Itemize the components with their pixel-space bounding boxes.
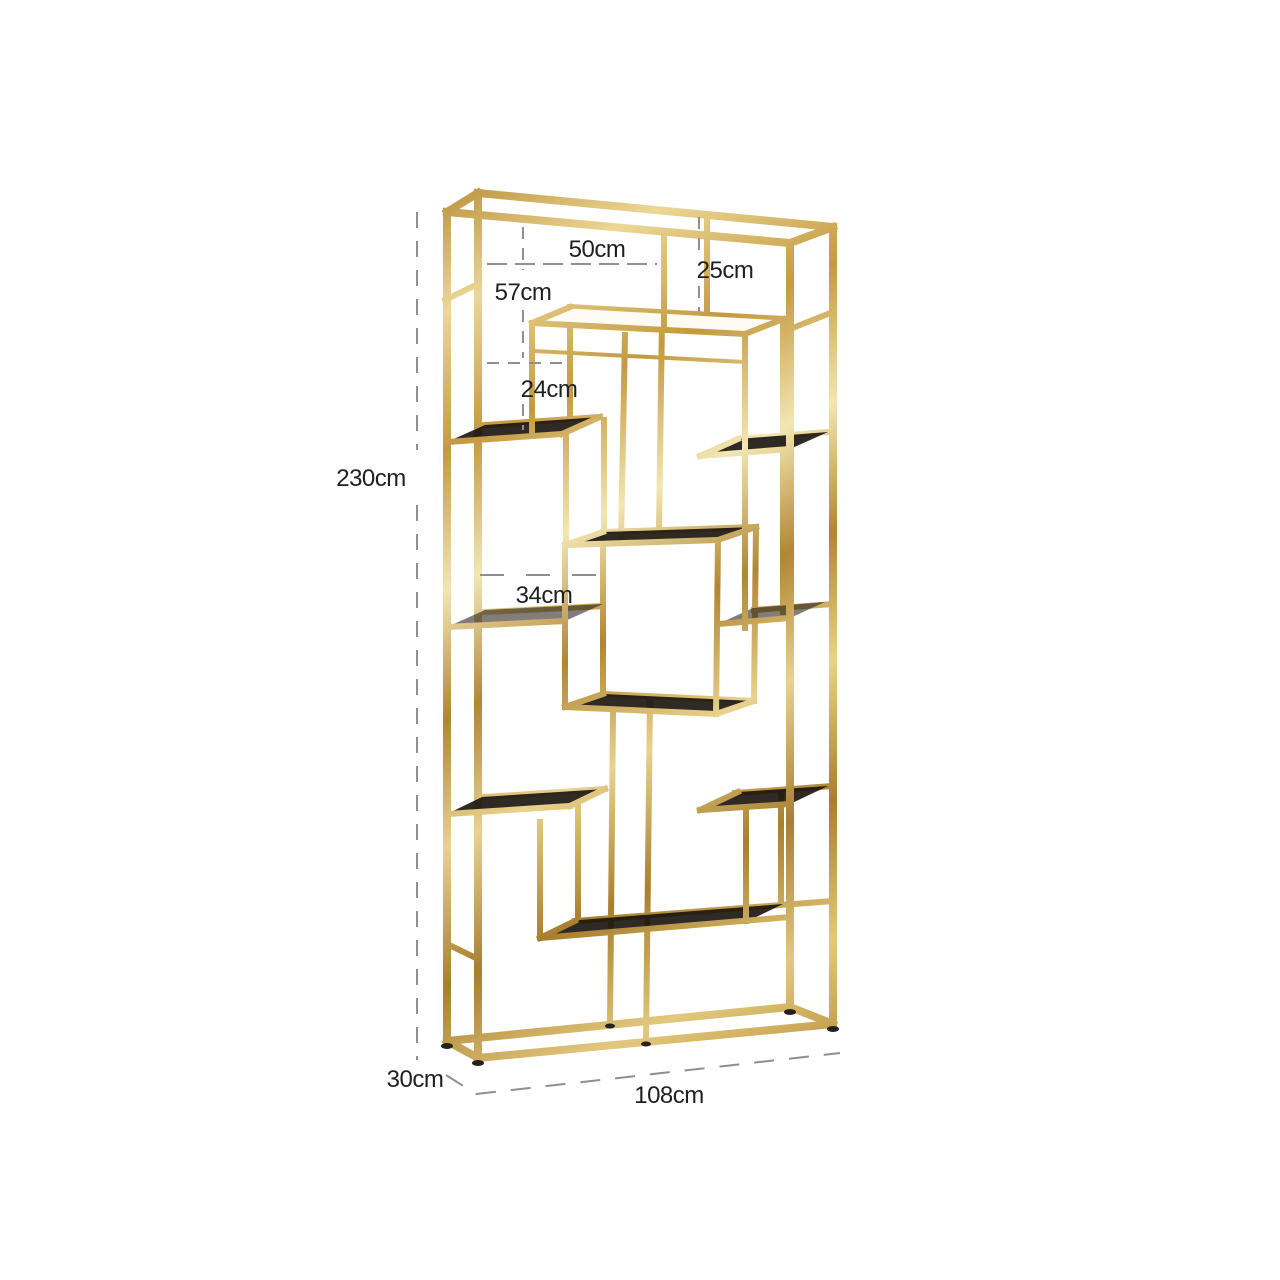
dimension-label-upper-left-shelf: 24cm [521, 376, 578, 403]
dimension-annotations: 230cm 57cm 50cm 25cm 24cm 34cm [336, 212, 840, 1109]
etagere-front-interior [447, 232, 790, 938]
dimension-label-overall-height: 230cm [336, 465, 406, 492]
dimension-label-upper-left-section: 57cm [495, 279, 552, 306]
dimension-top-shelf-width: 50cm [487, 236, 657, 264]
dimension-label-top-shelf-width: 50cm [569, 236, 626, 263]
dimension-label-overall-depth: 30cm [387, 1066, 444, 1093]
dimension-upper-left-section: 57cm [495, 227, 552, 358]
dimension-overall-depth: 30cm [387, 1066, 476, 1094]
diagram-canvas: 230cm 57cm 50cm 25cm 24cm 34cm [0, 0, 1280, 1280]
dimension-label-top-right-section: 25cm [697, 257, 754, 284]
dimension-line-overall-depth [446, 1075, 476, 1094]
dimension-overall-height: 230cm [336, 212, 417, 1060]
dimension-label-middle-shelf: 34cm [516, 582, 573, 609]
product-dimension-diagram: 230cm 57cm 50cm 25cm 24cm 34cm [0, 0, 1280, 1280]
dimension-overall-width: 108cm [476, 1053, 840, 1109]
etagere [441, 193, 839, 1066]
dimension-label-overall-width: 108cm [634, 1082, 704, 1109]
